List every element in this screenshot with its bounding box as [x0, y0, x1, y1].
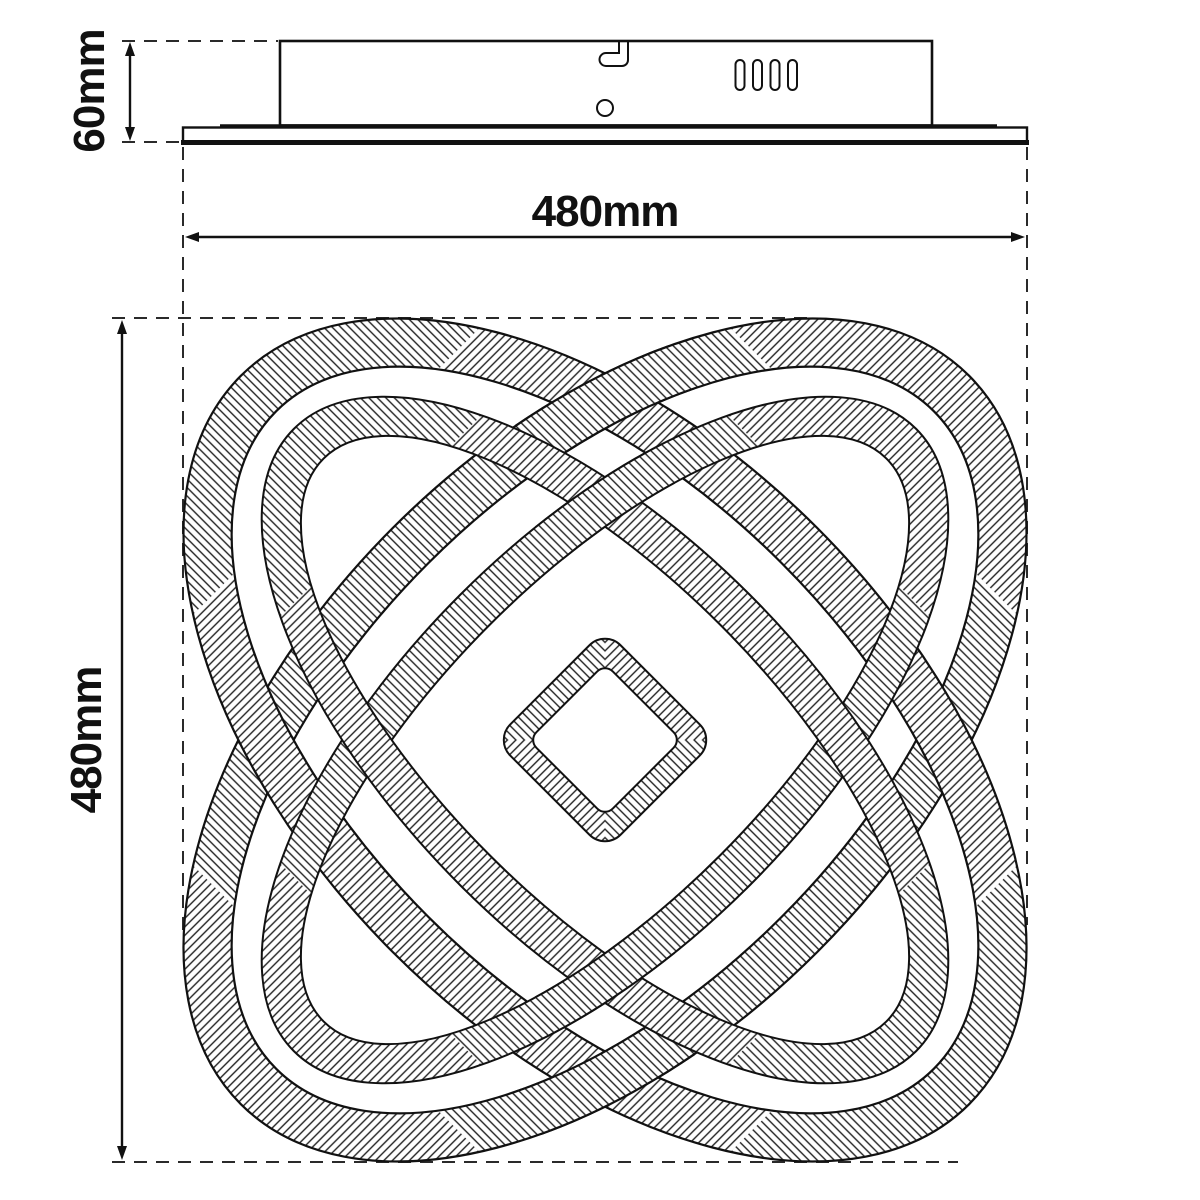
base-plate [183, 128, 1027, 142]
screw-hole [597, 100, 613, 116]
dimension-60mm: 60mm [65, 29, 135, 152]
arrowhead-down [117, 1146, 127, 1160]
arrowhead-up [125, 42, 135, 56]
vent-slot [753, 60, 762, 90]
large-ring-ne [15, 150, 1196, 1200]
arrowhead-up [117, 320, 127, 334]
arrowhead-down [125, 127, 135, 141]
dimension-label-height: 60mm [65, 29, 114, 152]
side-view [181, 41, 1029, 143]
large-ring-weave-patch [15, 150, 1196, 1200]
front-view-knot [15, 150, 1196, 1200]
arrowhead-right [1011, 232, 1025, 242]
center-diamond-ring [469, 604, 741, 876]
dimension-label-depth: 480mm [62, 667, 111, 814]
technical-drawing-page: 60mm 480mm 480mm [0, 0, 1200, 1200]
dimension-480mm-depth: 480mm [62, 320, 127, 1160]
vent-slot [736, 60, 745, 90]
technical-drawing: 60mm 480mm 480mm [0, 0, 1200, 1200]
dimension-480mm-width: 480mm [185, 187, 1025, 242]
arrowhead-left [185, 232, 199, 242]
vent-slot [771, 60, 780, 90]
large-ring-nw [15, 150, 1196, 1200]
dimension-label-width: 480mm [532, 187, 679, 236]
vent-slot [788, 60, 797, 90]
